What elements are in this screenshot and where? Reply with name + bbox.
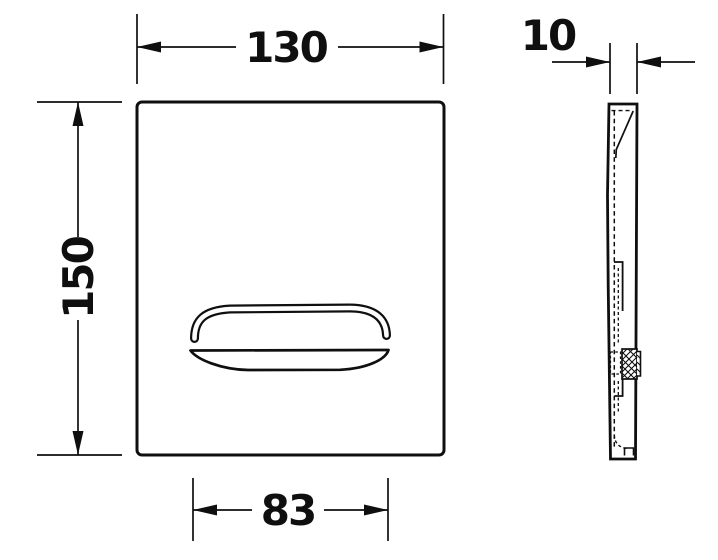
arrowhead-left [586,57,610,68]
dimension-button-width: 83 [193,478,388,541]
side-view [608,104,641,459]
arrowhead-left [193,505,217,516]
front-view [137,102,444,455]
dimension-height: 150 [37,102,122,455]
arrowhead-right [420,42,444,53]
flush-button-lower-dish [191,350,389,370]
arrowhead-right [364,505,388,516]
drawing-canvas: 130 150 83 [0,0,718,560]
arrowhead-bottom [73,431,84,455]
dimension-button-width-label: 83 [261,486,315,535]
dimension-depth: 10 [521,11,695,94]
plate-outline [137,102,444,455]
dimension-depth-label: 10 [521,11,576,60]
dimension-height-label: 150 [54,236,103,318]
dimension-width-label: 130 [245,23,327,72]
arrowhead-right [637,57,661,68]
arrowhead-left [137,42,161,53]
technical-drawing-svg: 130 150 83 [0,0,718,560]
dimension-width: 130 [137,14,444,84]
arrowhead-top [73,102,84,126]
